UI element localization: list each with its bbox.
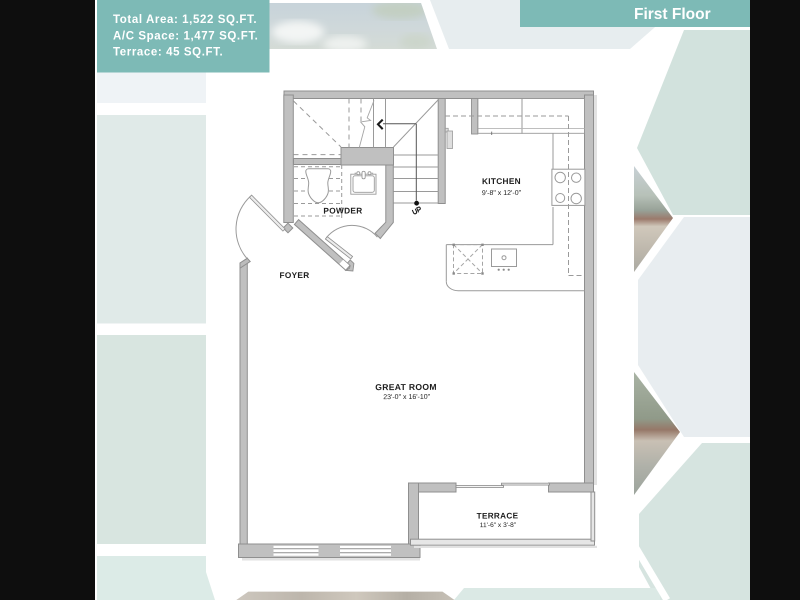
svg-text:Total Area: 1,522 SQ.FT.: Total Area: 1,522 SQ.FT. bbox=[113, 14, 257, 26]
svg-text:Terrace: 45 SQ.FT.: Terrace: 45 SQ.FT. bbox=[113, 47, 223, 59]
svg-text:GREAT ROOM: GREAT ROOM bbox=[375, 382, 437, 392]
svg-text:9'-8" x 12'-0": 9'-8" x 12'-0" bbox=[482, 190, 522, 197]
svg-text:KITCHEN: KITCHEN bbox=[482, 176, 521, 186]
svg-text:First Floor: First Floor bbox=[634, 6, 711, 23]
svg-text:FOYER: FOYER bbox=[279, 270, 309, 280]
svg-text:POWDER: POWDER bbox=[323, 205, 362, 215]
svg-text:TERRACE: TERRACE bbox=[477, 511, 519, 520]
svg-text:A/C Space: 1,477 SQ.FT.: A/C Space: 1,477 SQ.FT. bbox=[113, 31, 258, 43]
svg-text:23'-0" x 16'-10": 23'-0" x 16'-10" bbox=[383, 394, 430, 401]
svg-text:11'-6" x 3'-8": 11'-6" x 3'-8" bbox=[480, 522, 517, 529]
